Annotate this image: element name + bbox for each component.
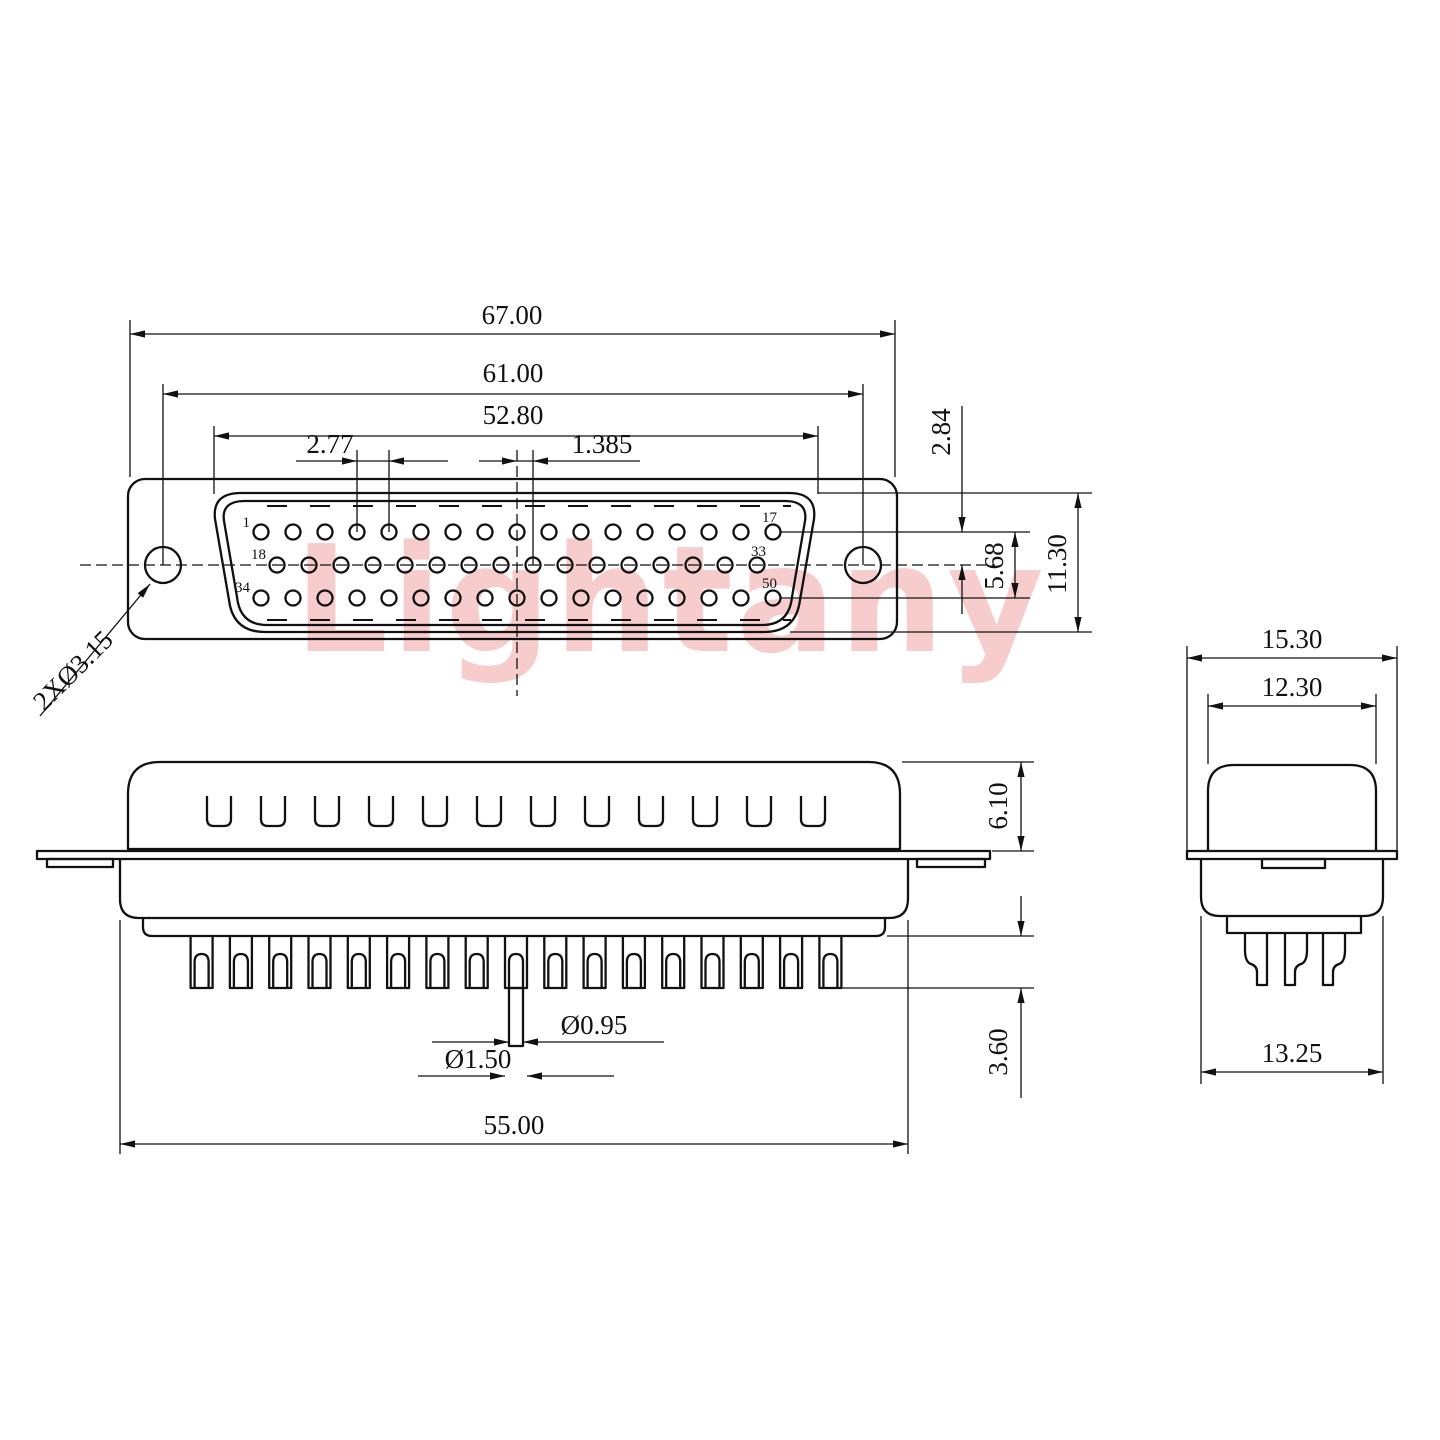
- pin-hole-bottom: [606, 591, 621, 606]
- shell-slot: [477, 796, 501, 826]
- pin-hole-top: [574, 525, 589, 540]
- shell-slot: [261, 796, 285, 826]
- dim-pin-pitch: 2.77: [306, 429, 353, 459]
- connector-drawing: 67.00 61.00 52.80 2.77 1.385 2.84 5.68 1…: [0, 0, 1440, 1440]
- arrowhead: [527, 1072, 542, 1079]
- pin-hole-bottom: [414, 591, 429, 606]
- arrowhead: [1368, 1068, 1383, 1075]
- shell-slot: [531, 796, 555, 826]
- shell-slot: [747, 796, 771, 826]
- arrowhead: [389, 457, 404, 464]
- end-flange: [1187, 851, 1397, 859]
- dim-pin-diameter: Ø0.95: [561, 1010, 628, 1040]
- solder-cup-opening: [548, 954, 562, 988]
- end-shell: [1208, 765, 1376, 851]
- solder-cup-opening: [391, 954, 405, 988]
- pin-hole-bottom: [574, 591, 589, 606]
- pin-hole-top: [606, 525, 621, 540]
- side-shell: [128, 762, 900, 849]
- arrowhead: [848, 390, 863, 397]
- dim-shell-height: 6.10: [983, 782, 1013, 829]
- dim-overall-width: 67.00: [482, 300, 543, 330]
- front-dimension-lines: [40, 320, 1092, 716]
- end-pin-right: [1323, 933, 1345, 985]
- pin-hole-bottom: [478, 591, 493, 606]
- dim-body-width: 55.00: [484, 1110, 545, 1140]
- side-dimension-lines: [120, 762, 1034, 1154]
- solder-cup-opening: [470, 954, 484, 988]
- pin-hole-top: [670, 525, 685, 540]
- pin-hole-bottom: [638, 591, 653, 606]
- solder-cup-opening: [666, 954, 680, 988]
- shell-slot: [207, 796, 231, 826]
- shell-slot: [369, 796, 393, 826]
- pin-hole-top: [766, 525, 781, 540]
- solder-cup-opening: [352, 954, 366, 988]
- arrowhead: [958, 565, 965, 580]
- dim-insert-width: 52.80: [483, 400, 544, 430]
- solder-cup-opening: [430, 954, 444, 988]
- technical-drawing-canvas: Lightany 67.00 61.00 52.80: [0, 0, 1440, 1440]
- arrowhead: [1017, 921, 1024, 936]
- end-flange-tab: [1262, 859, 1325, 868]
- front-shell-outer: [215, 493, 815, 632]
- solder-cup-opening: [706, 954, 720, 988]
- end-view: 15.30 12.30 13.25: [1187, 624, 1397, 1084]
- dim-mounting-hole-callout: 2XØ3.15: [27, 624, 119, 716]
- arrowhead: [1074, 493, 1081, 508]
- arrowhead: [163, 390, 178, 397]
- solder-cup-opening: [234, 954, 248, 988]
- dim-row-stagger: 1.385: [572, 429, 633, 459]
- arrowhead: [502, 457, 517, 464]
- pin-hole-bottom: [254, 591, 269, 606]
- pin-hole-top: [734, 525, 749, 540]
- dim-cup-diameter: Ø1.50: [445, 1044, 512, 1074]
- end-pin-left: [1245, 933, 1267, 985]
- end-body-step: [1227, 916, 1361, 933]
- pin-hole-top: [542, 525, 557, 540]
- pin-label-34: 34: [235, 580, 251, 596]
- arrowhead: [1201, 1068, 1216, 1075]
- pin-hole-top: [286, 525, 301, 540]
- side-flange-tab-left: [47, 859, 113, 867]
- side-body-step: [143, 918, 885, 936]
- pin-hole-top: [478, 525, 493, 540]
- solder-cup-opening: [195, 954, 209, 988]
- end-dimension-lines: [1187, 646, 1397, 1084]
- solder-cup-opening: [273, 954, 287, 988]
- pin-label-17: 17: [762, 510, 778, 526]
- pin-label-33: 33: [751, 544, 766, 560]
- solder-pins: [191, 936, 842, 988]
- shell-slot: [639, 796, 663, 826]
- arrowhead: [1017, 836, 1024, 851]
- arrowhead: [1017, 988, 1024, 1003]
- shell-slot: [423, 796, 447, 826]
- arrowhead: [1361, 702, 1376, 709]
- dim-insert-height: 11.30: [1042, 534, 1072, 594]
- solder-cup-opening: [627, 954, 641, 988]
- arrowhead: [1074, 617, 1081, 632]
- arrowhead: [214, 432, 229, 439]
- pin-hole-bottom: [702, 591, 717, 606]
- dim-pin-protrusion: 3.60: [983, 1028, 1013, 1075]
- arrowhead: [880, 330, 895, 337]
- pin-hole-bottom: [318, 591, 333, 606]
- pin-hole-bottom: [542, 591, 557, 606]
- pin-label-50: 50: [762, 576, 777, 592]
- arrowhead: [958, 517, 965, 532]
- arrowhead: [1011, 583, 1018, 598]
- solder-cup-opening: [313, 954, 327, 988]
- dim-lower-body-width: 13.25: [1262, 1038, 1323, 1068]
- shell-slots: [207, 796, 825, 826]
- pin-hole-bottom: [446, 591, 461, 606]
- arrowhead: [1187, 654, 1202, 661]
- arrowhead: [1382, 654, 1397, 661]
- side-view: 6.10 3.60 Ø0.95 Ø1.50 55.00: [37, 762, 1034, 1154]
- solder-cup-opening: [588, 954, 602, 988]
- side-flange: [37, 851, 990, 859]
- dim-shell-width: 12.30: [1262, 672, 1323, 702]
- side-flange-tab-right: [917, 859, 985, 867]
- solder-cup-opening: [745, 954, 759, 988]
- dim-row-offset: 2.84: [926, 408, 956, 456]
- front-view: 67.00 61.00 52.80 2.77 1.385 2.84 5.68 1…: [27, 300, 1092, 716]
- pin-hole-bottom: [350, 591, 365, 606]
- arrowhead: [523, 1038, 538, 1045]
- solder-cup-opening: [509, 954, 523, 988]
- dim-flange-width: 15.30: [1262, 624, 1323, 654]
- dim-row-to-row: 5.68: [979, 542, 1009, 589]
- end-pin-center: [1285, 933, 1307, 985]
- arrowhead: [803, 432, 818, 439]
- pin-label-1: 1: [243, 515, 251, 531]
- arrowhead: [130, 330, 145, 337]
- pin-hole-bottom: [734, 591, 749, 606]
- pin-hole-bottom: [766, 591, 781, 606]
- dim-mounting-hole-span: 61.00: [483, 358, 544, 388]
- arrowhead: [533, 457, 548, 464]
- arrowhead: [1208, 702, 1223, 709]
- pin-hole-bottom: [670, 591, 685, 606]
- pin-hole-bottom: [382, 591, 397, 606]
- shell-slot: [693, 796, 717, 826]
- pin-hole-top: [414, 525, 429, 540]
- pin-hole-top: [254, 525, 269, 540]
- arrowhead: [893, 1140, 908, 1147]
- side-body: [120, 859, 908, 918]
- pin-label-18: 18: [251, 547, 266, 563]
- solder-cup-opening: [784, 954, 798, 988]
- center-pin: [509, 988, 523, 1046]
- pin-hole-top: [638, 525, 653, 540]
- pin-hole-bottom: [286, 591, 301, 606]
- arrowhead: [1017, 762, 1024, 777]
- shell-slot: [315, 796, 339, 826]
- arrowhead: [1011, 532, 1018, 547]
- pin-hole-top: [318, 525, 333, 540]
- solder-cup-opening: [823, 954, 837, 988]
- shell-slot: [801, 796, 825, 826]
- pin-hole-top: [702, 525, 717, 540]
- arrowhead: [120, 1140, 135, 1147]
- pin-hole-top: [446, 525, 461, 540]
- shell-slot: [585, 796, 609, 826]
